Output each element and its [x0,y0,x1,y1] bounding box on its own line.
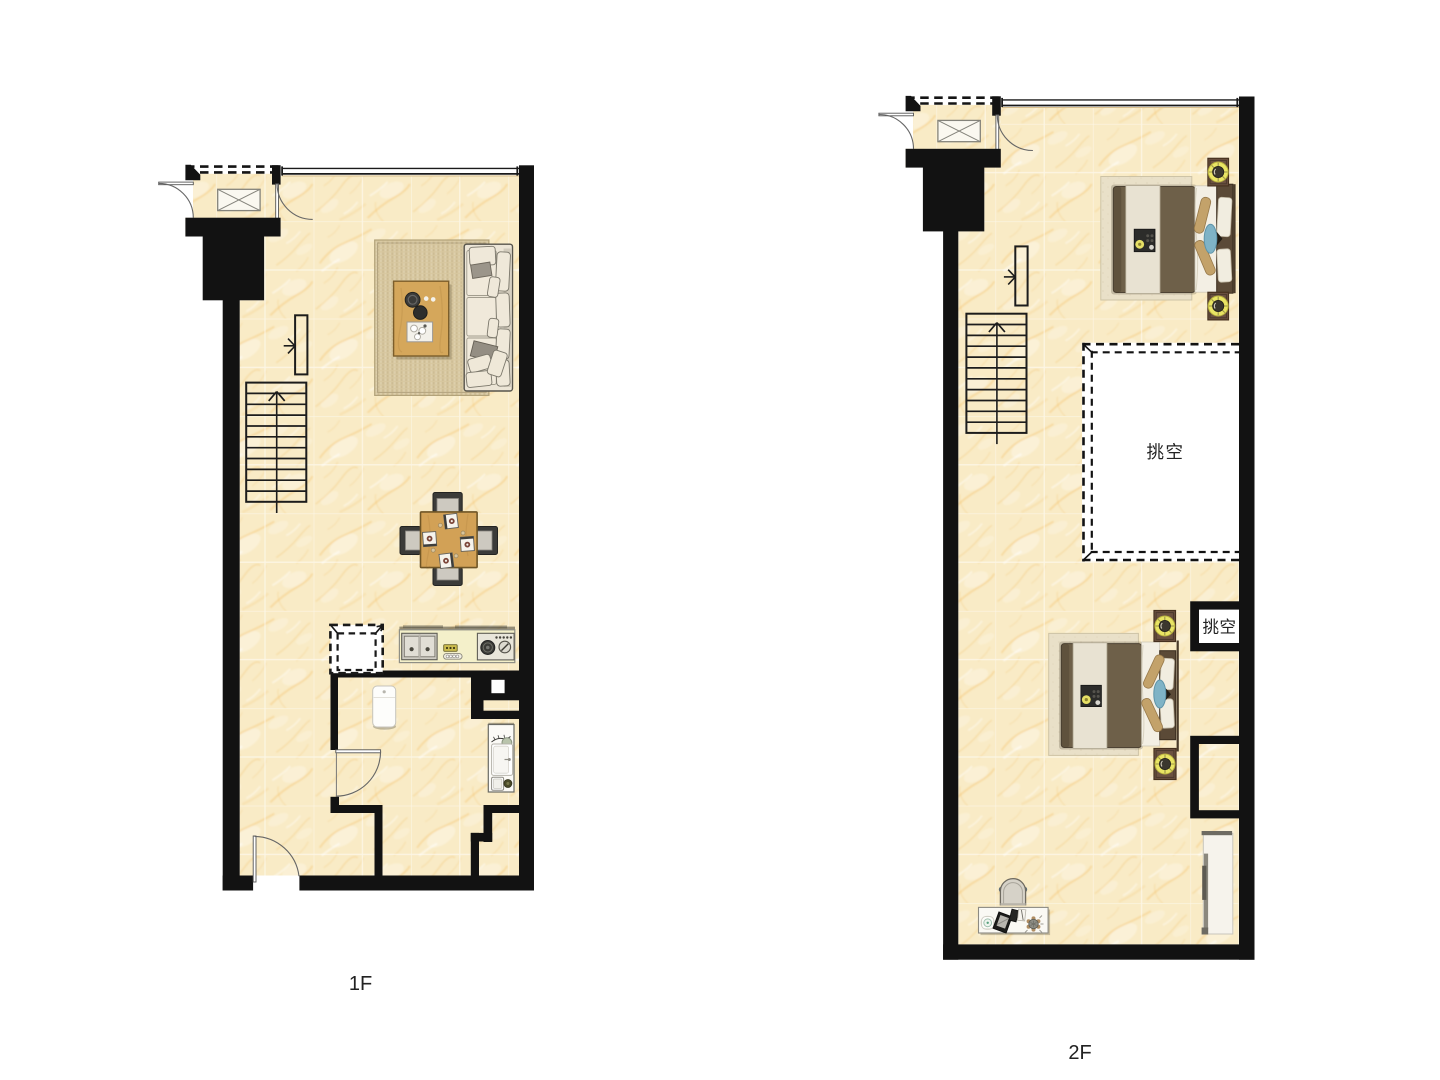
svg-text:1F: 1F [349,973,372,995]
svg-text:挑空: 挑空 [1203,618,1237,637]
svg-text:2F: 2F [1068,1042,1091,1064]
svg-text:挑空: 挑空 [1147,442,1185,462]
